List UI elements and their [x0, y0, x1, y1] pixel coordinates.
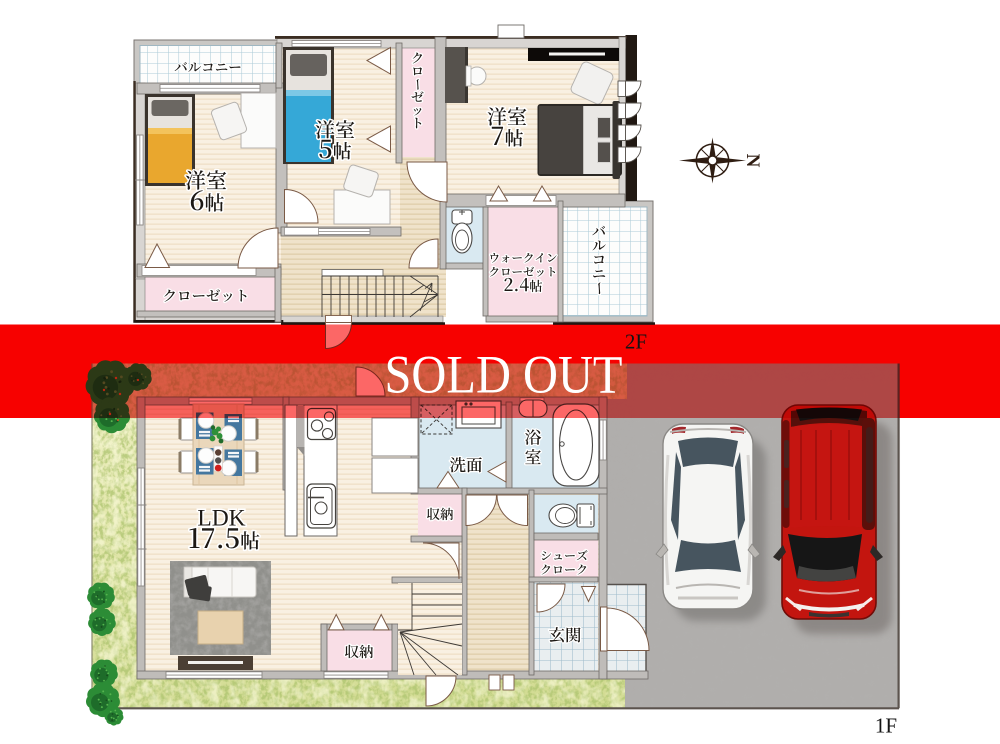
svg-text:SOLD OUT: SOLD OUT [385, 344, 623, 405]
svg-text:2F: 2F [625, 330, 647, 354]
svg-text:LDK: LDK [197, 506, 245, 532]
svg-text:1F: 1F [875, 714, 897, 738]
svg-text:N: N [742, 154, 763, 168]
